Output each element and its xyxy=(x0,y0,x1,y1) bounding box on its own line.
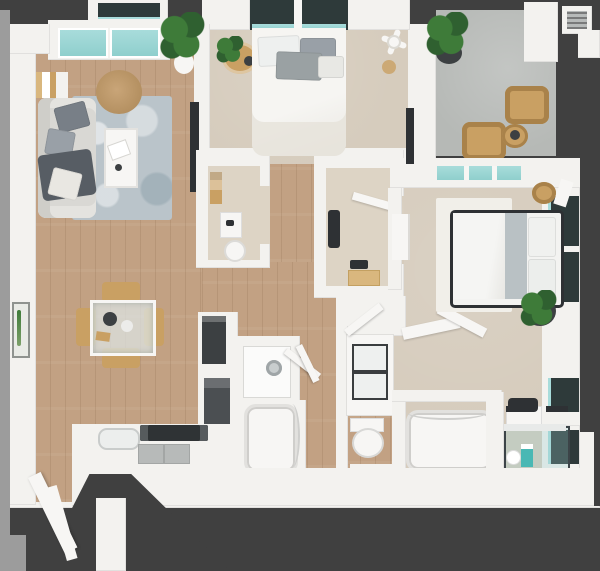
cabinet-front-2 xyxy=(164,444,190,464)
wall-art-frame xyxy=(12,302,30,358)
bedroom1-plant-icon xyxy=(216,36,246,64)
dining-plate-white xyxy=(121,320,133,332)
wall-top-living xyxy=(10,24,50,54)
coffee-table-decor xyxy=(115,164,122,171)
transom-mullion-1 xyxy=(464,166,469,180)
wall-bathroom2-mid xyxy=(392,396,406,470)
corridor-floor xyxy=(266,150,316,262)
washer-door-icon xyxy=(266,360,282,376)
bay-window-glass-left xyxy=(58,28,108,58)
wall-shower-left xyxy=(486,392,504,470)
bathroom2-sink-1 xyxy=(352,344,388,372)
bathroom1-shelf xyxy=(210,172,222,204)
exterior-left-strip xyxy=(0,10,10,571)
dining-chair-top xyxy=(102,282,140,302)
shower-curtain-rod-1 xyxy=(284,404,300,468)
bathroom1-faucet-icon xyxy=(226,220,234,226)
exterior-right-strip xyxy=(580,158,600,432)
wicker-chair-2 xyxy=(462,122,506,160)
bedroom1-wall-lamp xyxy=(382,60,396,74)
straw-hat-decor-icon xyxy=(532,182,556,204)
exterior-bottom-right-notch xyxy=(594,432,600,506)
bedroom2-pillow-1 xyxy=(528,217,556,257)
round-ottoman xyxy=(96,70,142,114)
entry-wall-fragment xyxy=(96,498,126,571)
bedroom2-dresser xyxy=(392,214,410,260)
bay-window-glass-right xyxy=(110,28,160,58)
dining-plate-dark xyxy=(103,312,117,326)
bedroom1-window-mullion xyxy=(294,0,302,30)
bedroom1-wall-tv-icon xyxy=(406,108,414,164)
balcony-column xyxy=(524,2,558,62)
shower-curtain-rod-2 xyxy=(406,404,488,420)
bedroom2-duvet xyxy=(453,213,505,299)
oven xyxy=(204,378,230,430)
exterior-corner xyxy=(0,535,26,571)
kitchen-sink xyxy=(98,428,140,450)
patio-table-decor xyxy=(510,130,520,140)
dining-placemat xyxy=(95,331,110,342)
balcony-right-corner-wall xyxy=(578,30,600,58)
closet-hanging-clothes-icon xyxy=(328,210,340,248)
bathroom1-nook-opening xyxy=(258,186,270,244)
bedroom1-pillow-gray-2 xyxy=(276,51,323,81)
bedroom2-blanket-band xyxy=(505,213,527,299)
closet-shoes-icon xyxy=(350,260,368,269)
ceiling-fan-icon xyxy=(378,26,410,58)
bay-overhang-glass xyxy=(98,3,160,19)
right-window-pane-3 xyxy=(548,378,579,412)
closet-storage-box xyxy=(348,270,380,286)
refrigerator xyxy=(202,316,226,364)
wall-bottom xyxy=(230,468,595,506)
bookshelf xyxy=(36,72,68,98)
wicker-chair-1 xyxy=(505,86,549,124)
wall-art-plant-icon xyxy=(17,310,21,346)
bathroom1-toilet xyxy=(224,240,246,262)
fan-hub xyxy=(389,37,399,47)
balcony-plant-icon xyxy=(426,12,472,58)
roof-vent-grille-icon xyxy=(567,11,587,29)
bathroom2-toilet xyxy=(352,428,384,458)
bedroom1-pillow-white-2 xyxy=(318,56,344,78)
floor-plan-render xyxy=(0,0,600,571)
shower-glass-ledge xyxy=(504,424,566,431)
living-plant-icon xyxy=(160,12,208,62)
toiletry-bottle xyxy=(521,444,533,467)
cooktop xyxy=(140,425,208,441)
shower-fixture-icon xyxy=(508,398,538,412)
wall-left xyxy=(10,24,36,505)
toiletry-sphere xyxy=(506,450,521,465)
bedroom2-plant-icon xyxy=(520,290,560,328)
bedroom2-transom-window xyxy=(437,166,521,180)
transom-mullion-2 xyxy=(492,166,497,180)
coffee-table xyxy=(104,128,138,188)
bathroom2-sink-2 xyxy=(352,372,388,400)
cabinet-front-1 xyxy=(138,444,164,464)
